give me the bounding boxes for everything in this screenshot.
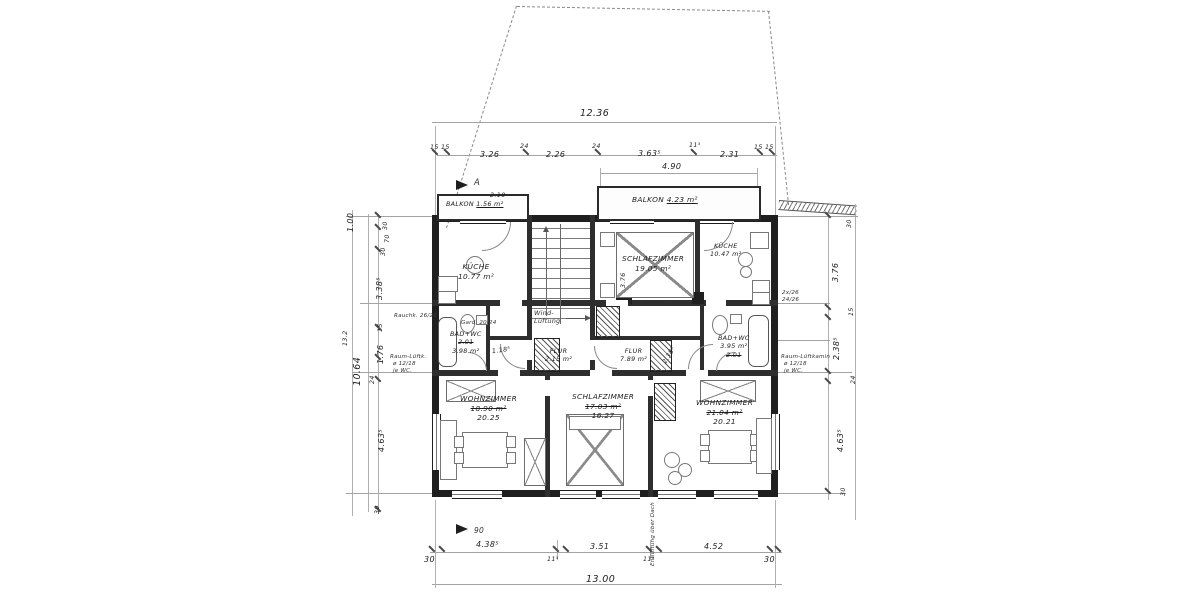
chair [454,452,464,464]
dimension-label: 15 [754,144,763,151]
window [658,490,696,499]
dimension-label: 12.36 [580,108,609,119]
window [452,490,502,499]
sofa [440,420,457,480]
annotation-flue: 24/26 [664,300,681,306]
extension-line [360,303,432,304]
table [462,432,508,468]
door-opening [500,300,522,306]
neighbor-wall-hatch [778,200,857,215]
dimension-label: 3.76 [831,263,840,282]
window [560,490,596,499]
section-marker-icon [456,180,468,190]
room-name: KÜCHE [710,242,742,250]
dimension-label: 3.76 [620,272,627,288]
room-area-old: 21.04 m² [696,408,753,418]
dimension-label: 15 [765,144,774,151]
extension-line [778,493,846,494]
extension-line [778,340,830,341]
dimension-label: 3.63⁵ [638,149,661,158]
annotation-vent-right: ø 12/18 [784,361,807,367]
dimension-label: 30 [840,487,847,496]
dimension-label: 3.26 [480,150,499,159]
dimension-label: 24 [369,375,376,384]
wall-segment [490,336,528,340]
dimension-label: 4.63⁵ [836,429,845,452]
room-name: BALKON [446,200,474,208]
stair-step [532,288,590,289]
annotation-vent-right: Raum-Lüftkamin [781,354,830,360]
stair-step [532,248,590,249]
room-area-old: 17.03 m² [572,402,634,412]
stair-step [532,298,590,299]
sofa [756,418,772,474]
door-opening [706,300,726,306]
extension-line [435,126,436,215]
kitchen-counter [438,291,456,304]
dimension-line [855,204,856,520]
annotation-wind-lueftung: Wind- [534,309,554,317]
dimension-label: 30 [846,219,853,228]
dimension-label: 11⁵ [689,142,701,149]
extension-line [778,303,830,304]
room-name: BAD+WC [718,334,750,342]
dimension-label: 4.90 [662,162,681,171]
kitchen-counter [752,292,770,305]
room-area: 3.98 m² [450,347,482,355]
dimension-label: 15 [377,323,384,332]
dimension-label: 11⁵ [547,556,559,563]
dimension-label: 15 [441,144,450,151]
room-label-kueche-left: KÜCHE 10.77 m² [458,262,494,281]
room-label-balkon-top: BALKON 4.23 m² [632,195,698,205]
dimension-label: 24 [520,143,529,150]
dimension-label: 24 [850,375,857,384]
room-name: SCHLAFZIMMER [622,254,684,264]
door-opening [498,370,520,376]
floorplan-drawing: BALKON 1.56 m² BALKON 4.23 m² KÜCHE 10.7… [0,0,1200,600]
room-area-new: 20.25 [460,413,517,423]
dimension-label: 3.51 [590,542,609,551]
room-name: FLUR [545,347,572,355]
chair [700,450,710,462]
dimension-label: 1.00 [346,213,355,232]
room-name: KÜCHE [458,262,494,272]
dimension-label: 4.52 [704,542,723,551]
room-label-flur-left: FLUR 2.15 m² [545,347,572,364]
cabinet [524,438,546,486]
room-area: 10.47 m² [710,250,742,258]
extension-line [435,500,436,588]
door-swing-arc [688,344,713,369]
stair-divider [560,224,561,324]
dimension-label: 24 [592,143,601,150]
dimension-line [368,214,369,512]
room-name: BAD+WC [450,330,482,338]
section-marker-icon [456,524,468,534]
room-label-balkon-left: BALKON 1.56 m² [446,200,503,208]
annotation-garderobe: Gard. 20/24 [461,320,497,326]
window [771,414,780,470]
room-label-wohnzimmer-left: WOHNZIMMER 18.90 m² 20.25 [460,394,517,423]
stair-step [532,228,590,229]
chair [700,434,710,446]
dimension-line [430,552,782,553]
dimension-label: 13.2 [342,330,349,346]
window [602,490,640,499]
dimension-label: 30 [424,555,435,564]
dimension-label: 4.63⁵ [377,429,386,452]
stair-step [532,268,590,269]
room-area: 1.56 m² [476,200,503,208]
annotation-flue: 26/26 [628,300,645,306]
chair [506,436,516,448]
extension-line [346,216,432,217]
room-label-kueche-right: KÜCHE 10.47 m² [710,242,742,259]
room-area: 10.77 m² [458,272,494,282]
extension-line [346,493,432,494]
nightstand [600,232,615,247]
room-label-bad-left: BAD+WC 2.01 3.98 m² [450,330,482,355]
stair-step [532,238,590,239]
kitchen-counter [438,276,458,292]
room-name: FLUR [620,347,647,355]
room-label-schlafzimmer-top: SCHLAFZIMMER 19.05 m² [622,254,684,273]
chair [454,436,464,448]
kitchen-sink [740,266,752,278]
side-table [664,452,680,468]
dimension-label: 13.00 [586,574,615,585]
stair-arrow-head [543,226,549,232]
annotation-vent-right: je WC. [784,368,803,374]
annotation-vent-left: ø 12/18 [393,361,416,367]
extension-line [352,372,432,373]
dimension-label: 4.38⁵ [476,540,499,549]
dimension-label: 3.38⁵ [375,277,384,300]
room-name: SCHLAFZIMMER [572,392,634,402]
annotation-vent-left: je WC. [393,368,412,374]
dimension-label: 70 [384,234,391,243]
door-opening [527,340,532,360]
annotation-rauchkamin: Rauchk. 26/26 [394,313,437,319]
nightstand [600,283,615,298]
bathtub [748,315,769,367]
door-opening [590,370,612,376]
dimension-line [432,122,777,123]
door-width-label: 90 [474,526,484,535]
dimension-label: 30 [374,505,381,514]
stair-step [532,278,590,279]
room-name: BALKON [632,195,664,204]
window [714,490,758,499]
room-area: 19.05 m² [622,264,684,274]
room-area-new: 20.21 [696,417,753,427]
extension-line [775,126,776,215]
toilet [712,315,728,335]
stove [750,232,769,249]
dimension-label: 1.76 [376,345,385,364]
annotation-vent-left: Raum-Lüftk. [390,354,426,360]
room-label-bad-right: BAD+WC 3.95 m² 2.01 [718,334,750,359]
dimension-label: 2.26 [546,150,565,159]
chair [506,452,516,464]
dimension-label: 10.64 [352,357,363,386]
dimension-line [600,173,757,174]
room-area-old: 2.01 [718,351,750,359]
door-opening [648,380,653,396]
room-area-old: 2.01 [450,338,482,346]
annotation-arrow-head [585,315,591,321]
site-boundary-line [517,6,770,12]
room-name: WOHNZIMMER [460,394,517,404]
dimension-label: 30 [382,221,389,230]
room-label-wohnzimmer-right: WOHNZIMMER 21.04 m² 20.21 [696,398,753,427]
section-marker-label: A [474,178,480,188]
annotation-flue-right: 2x/26 [782,290,799,296]
dimension-label: 15 [848,307,855,316]
shaft-hatch [596,306,620,338]
extension-line [600,168,601,186]
extension-line [757,168,758,186]
room-area: 7.89 m² [620,355,647,363]
annotation-wind-lueftung: Lüftung [534,317,560,325]
table [708,430,752,464]
stair-step [532,258,590,259]
room-area: 4.23 m² [667,195,698,204]
room-area-new: 16.27 [572,411,634,421]
room-area: 3.95 m² [718,342,750,350]
door-swing-arc [594,346,617,369]
dimension-label: 30 [380,247,387,256]
sink [730,314,742,324]
room-area: 2.15 m² [545,355,572,363]
door-swing-arc [482,222,511,251]
room-area-old: 18.90 m² [460,404,517,414]
stair-arrow [546,232,547,316]
annotation-duct: Entlüftung über Dach [650,502,656,566]
room-label-flur-right: FLUR 7.89 m² [620,347,647,364]
door-opening [686,370,708,376]
dimension-label: 2.10 [490,192,506,199]
extension-line [778,216,858,217]
annotation-flue-right: 24/26 [782,297,799,303]
dimension-line [378,214,379,514]
site-boundary-line [768,11,789,205]
shaft-hatch [654,383,676,421]
side-table [668,471,682,485]
dimension-label: 2.38⁵ [832,337,841,360]
door-opening [545,380,550,396]
dimension-label: 15 [430,144,439,151]
room-name: WOHNZIMMER [696,398,753,408]
dimension-label: 2.31 [720,150,739,159]
room-label-schlafzimmer-bottom: SCHLAFZIMMER 17.03 m² 16.27 [572,392,634,421]
dimension-label: 30 [764,555,775,564]
